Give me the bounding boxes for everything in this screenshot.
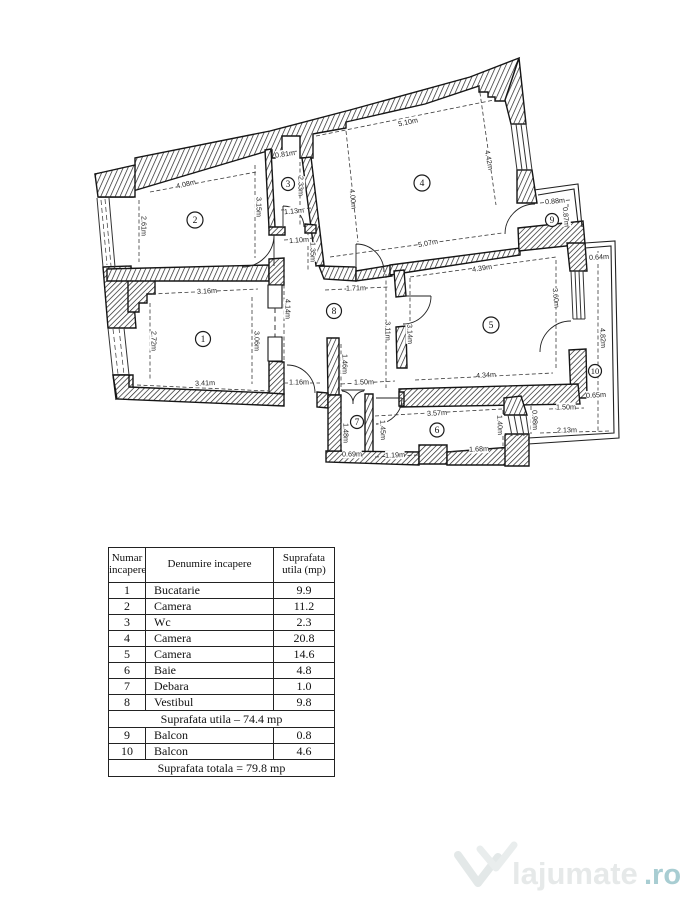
svg-text:3.15m: 3.15m xyxy=(255,197,264,217)
svg-text:0.88m: 0.88m xyxy=(545,196,566,207)
svg-text:2.33m: 2.33m xyxy=(297,176,306,196)
svg-text:1.19m: 1.19m xyxy=(385,450,405,460)
svg-text:1.68m: 1.68m xyxy=(469,444,489,454)
svg-text:5.07m: 5.07m xyxy=(417,237,438,250)
svg-text:3.16m: 3.16m xyxy=(197,286,217,296)
svg-text:3.60m: 3.60m xyxy=(551,288,562,309)
svg-text:9: 9 xyxy=(550,215,555,225)
svg-text:1.40m: 1.40m xyxy=(495,415,505,435)
svg-text:1: 1 xyxy=(201,335,206,345)
svg-text:10: 10 xyxy=(591,366,600,376)
svg-text:4.42m: 4.42m xyxy=(483,149,495,170)
svg-text:4.00m: 4.00m xyxy=(348,189,359,210)
svg-text:.ro: .ro xyxy=(644,859,681,891)
svg-text:3.06m: 3.06m xyxy=(253,331,262,351)
svg-text:1.50m: 1.50m xyxy=(556,402,576,411)
svg-text:2.13m: 2.13m xyxy=(557,425,577,434)
svg-text:1.48m: 1.48m xyxy=(342,423,351,443)
svg-text:0.87m: 0.87m xyxy=(561,207,572,228)
svg-text:0.64m: 0.64m xyxy=(589,252,609,262)
svg-text:1.45m: 1.45m xyxy=(378,420,388,440)
svg-text:2.72m: 2.72m xyxy=(150,331,159,351)
svg-text:4.08m: 4.08m xyxy=(175,177,197,190)
svg-text:1.13m: 1.13m xyxy=(284,206,305,217)
svg-text:4.34m: 4.34m xyxy=(476,370,497,380)
svg-text:5.10m: 5.10m xyxy=(397,115,418,128)
svg-text:1.50m: 1.50m xyxy=(354,377,374,386)
svg-text:0.69m: 0.69m xyxy=(342,449,362,458)
svg-text:1.10m: 1.10m xyxy=(289,235,310,245)
svg-text:3.11m: 3.11m xyxy=(384,321,393,340)
svg-text:lajumate: lajumate xyxy=(512,856,638,891)
svg-text:0.65m: 0.65m xyxy=(586,390,606,400)
svg-text:1.16m: 1.16m xyxy=(289,377,309,386)
svg-text:1.35m: 1.35m xyxy=(309,242,318,262)
svg-text:2.61m: 2.61m xyxy=(140,216,149,236)
svg-text:3: 3 xyxy=(286,179,291,189)
svg-text:4.39m: 4.39m xyxy=(471,262,492,274)
svg-text:3.14m: 3.14m xyxy=(405,324,415,344)
svg-text:8: 8 xyxy=(332,307,337,317)
svg-text:1.46m: 1.46m xyxy=(341,354,350,374)
svg-text:4.82m: 4.82m xyxy=(598,328,608,348)
svg-text:3.41m: 3.41m xyxy=(195,378,215,388)
svg-text:3.57m: 3.57m xyxy=(427,408,447,418)
svg-text:1.71m: 1.71m xyxy=(346,283,366,292)
svg-text:0.81m: 0.81m xyxy=(274,148,295,160)
svg-text:4: 4 xyxy=(420,179,425,189)
svg-text:7: 7 xyxy=(355,417,360,427)
svg-text:6: 6 xyxy=(435,426,440,436)
svg-text:5: 5 xyxy=(489,321,494,331)
svg-text:0.98m: 0.98m xyxy=(530,410,540,430)
svg-text:2: 2 xyxy=(193,216,198,226)
svg-text:4.14m: 4.14m xyxy=(284,299,293,319)
